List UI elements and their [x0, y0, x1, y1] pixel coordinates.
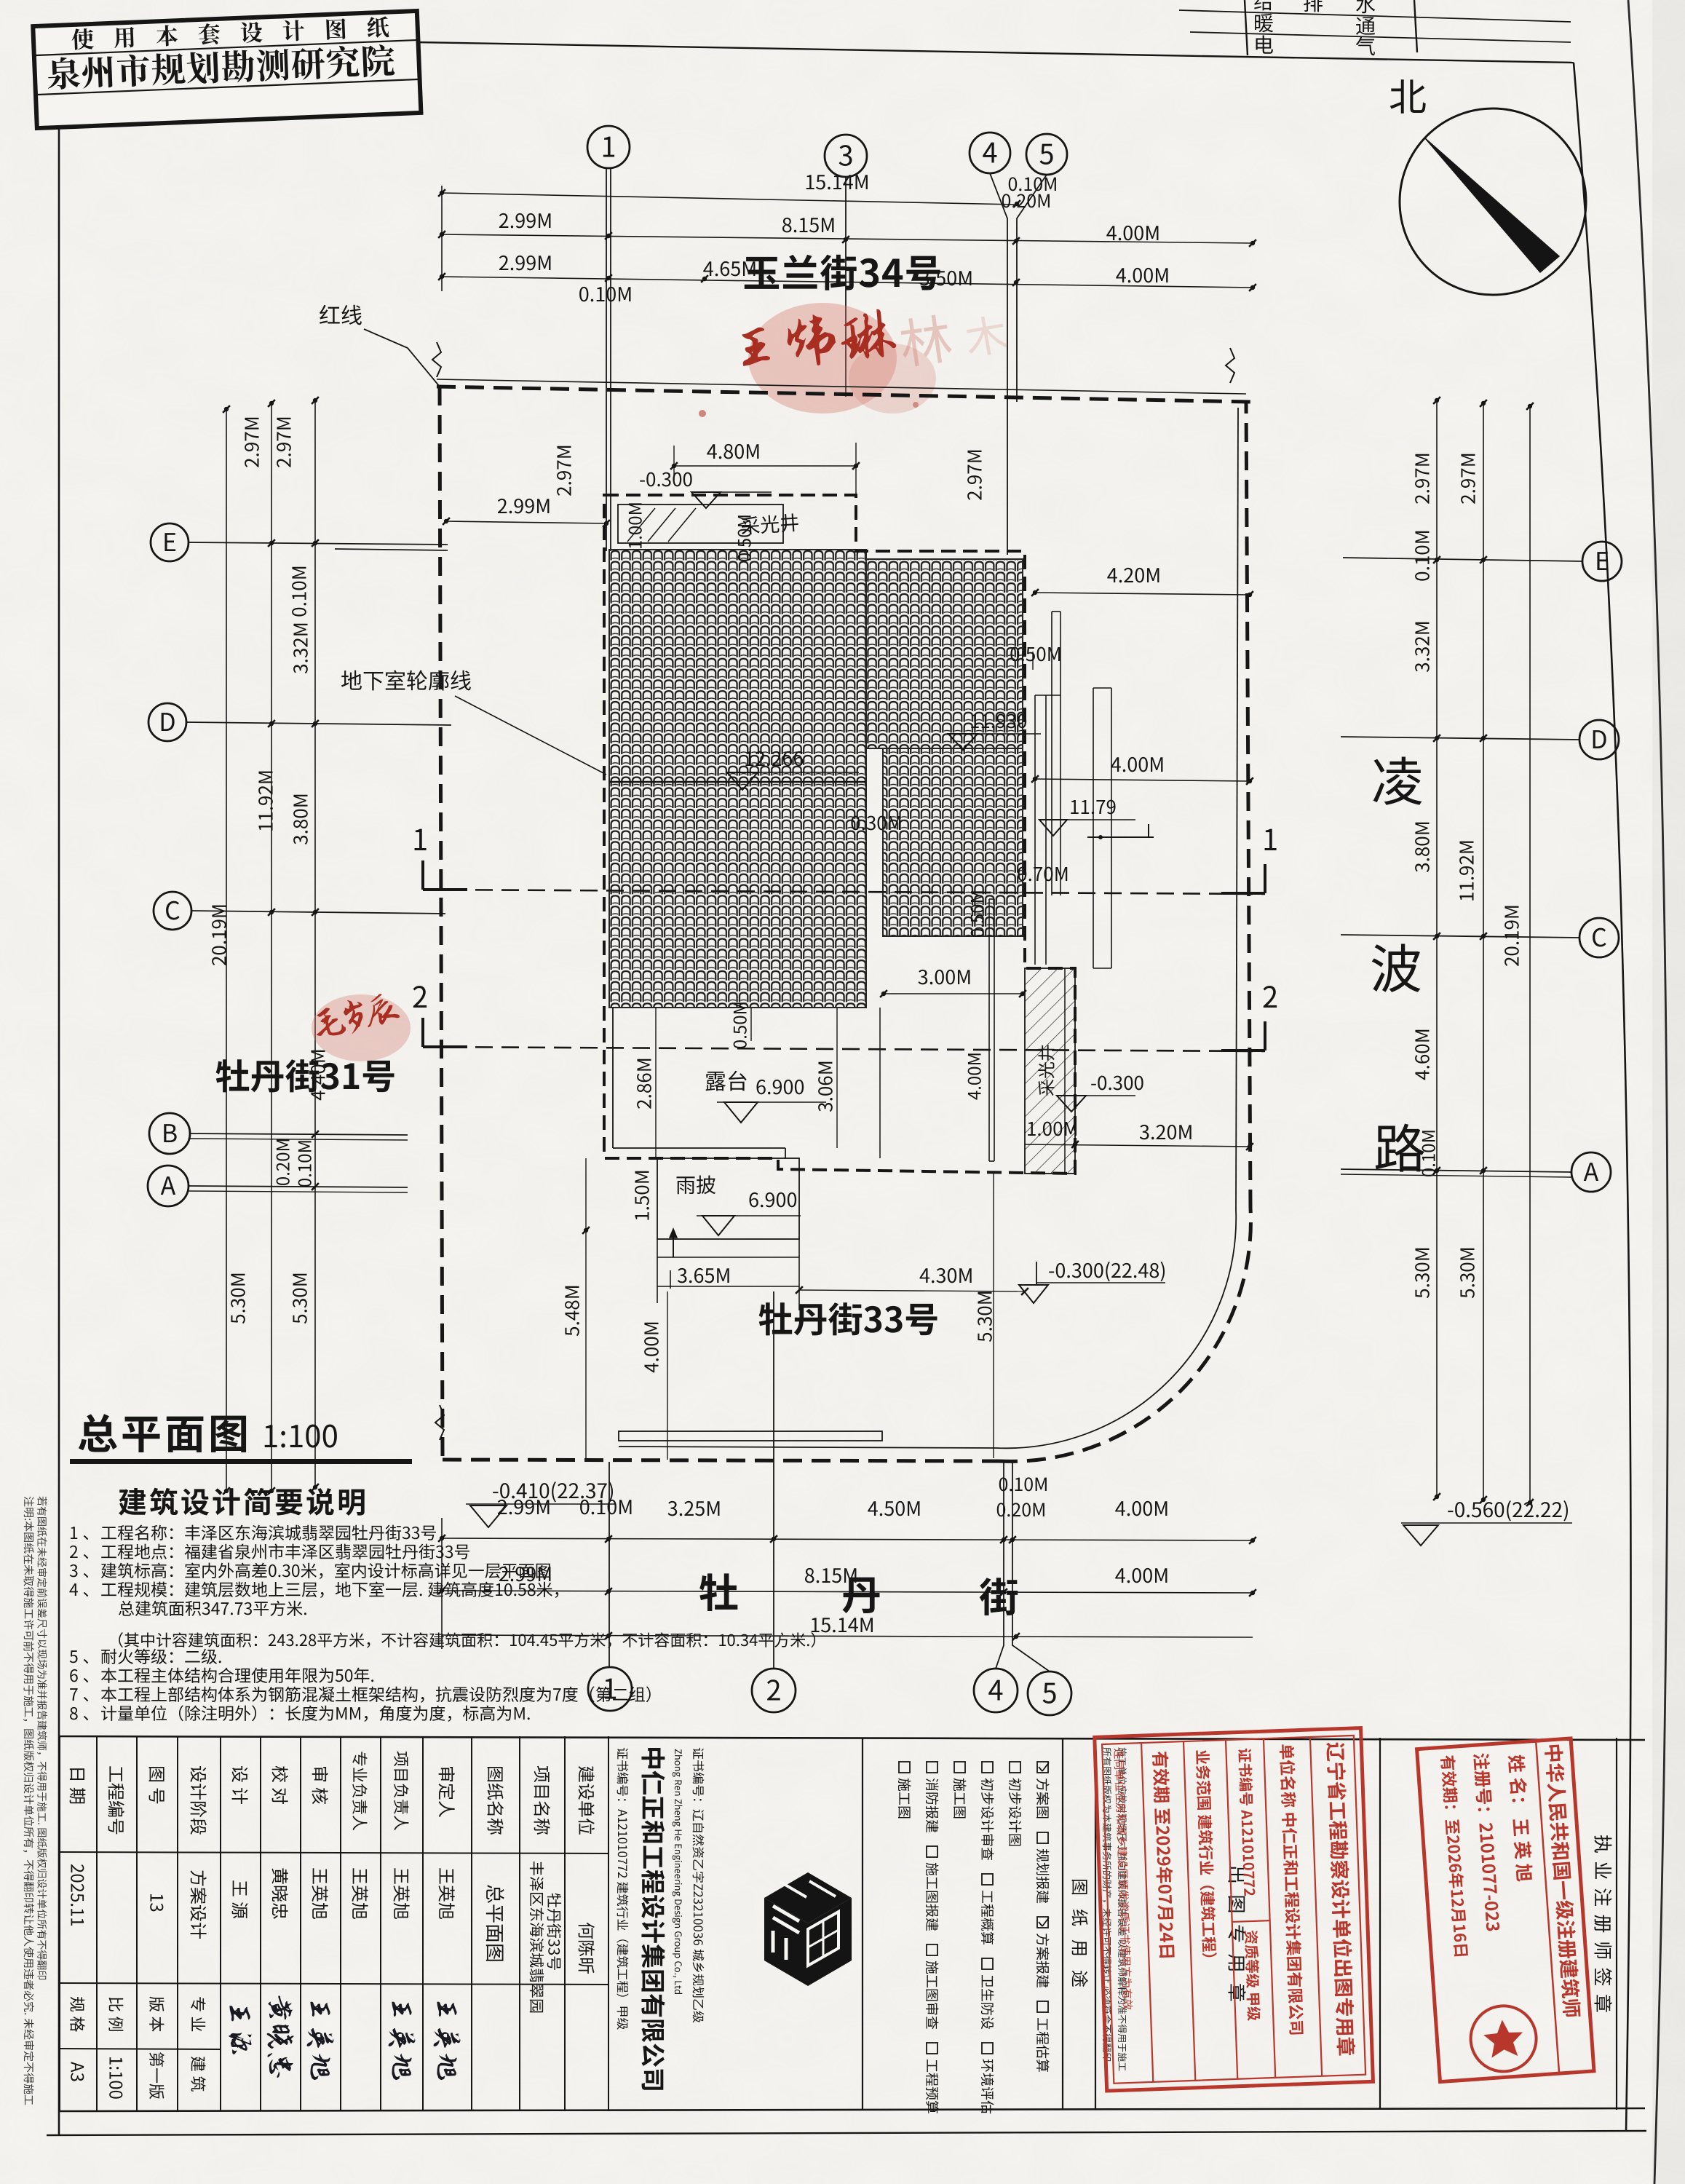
- svg-text:王英旭: 王英旭: [348, 1867, 373, 1920]
- svg-text:-0.560(22.22): -0.560(22.22): [1447, 1495, 1570, 1524]
- svg-text:王源: 王源: [223, 1998, 256, 2059]
- svg-text:C: C: [164, 891, 181, 927]
- svg-text:2.97M: 2.97M: [960, 448, 987, 501]
- svg-text:4 、: 4 、: [69, 1576, 100, 1601]
- svg-text:设计阶段: 设计阶段: [186, 1765, 212, 1835]
- svg-text:4.00M: 4.00M: [1116, 260, 1170, 288]
- svg-text:林: 林: [896, 312, 955, 371]
- svg-text:初步设计图: 初步设计图: [1005, 1778, 1025, 1847]
- svg-text:0.50M: 0.50M: [1010, 640, 1062, 667]
- svg-text:0.10M: 0.10M: [285, 565, 312, 617]
- svg-text:A: A: [161, 1166, 176, 1202]
- svg-text:专业负责人: 专业负责人: [349, 1751, 372, 1831]
- svg-text:0.20M: 0.20M: [996, 1496, 1047, 1522]
- svg-text:5: 5: [1039, 132, 1054, 173]
- svg-text:建 筑: 建 筑: [187, 2056, 210, 2092]
- svg-text:5.30M: 5.30M: [1408, 1246, 1435, 1299]
- svg-text:0.10M: 0.10M: [291, 1139, 317, 1187]
- svg-text:方案图: 方案图: [1033, 1778, 1052, 1819]
- svg-text:-0.300: -0.300: [1090, 1069, 1144, 1096]
- svg-text:凌: 凌: [1371, 740, 1424, 816]
- svg-text:工程估算: 工程估算: [1033, 2017, 1052, 2073]
- svg-text:王英旭: 王英旭: [435, 1867, 460, 1920]
- svg-text:4.00M: 4.00M: [1115, 1560, 1169, 1588]
- svg-text:4.00M: 4.00M: [1111, 749, 1165, 778]
- svg-text:规 格: 规 格: [66, 1996, 90, 2033]
- svg-text:5.30M: 5.30M: [285, 1272, 312, 1324]
- svg-text:0.10M: 0.10M: [999, 1471, 1049, 1497]
- svg-text:气: 气: [1355, 31, 1376, 60]
- svg-text:3.25M: 3.25M: [667, 1493, 721, 1522]
- svg-text:20.19M: 20.19M: [205, 903, 231, 966]
- svg-text:审 核: 审 核: [308, 1765, 333, 1805]
- svg-text:王英旭: 王英旭: [389, 1867, 415, 1920]
- svg-text:执 业 注 册 师 签 章: 执 业 注 册 师 签 章: [1590, 1835, 1617, 2014]
- svg-text:0.50M: 0.50M: [726, 1001, 752, 1049]
- svg-text:施工图报建: 施工图报建: [922, 1862, 942, 1931]
- svg-text:E: E: [162, 523, 177, 558]
- svg-text:路: 路: [1373, 1107, 1426, 1183]
- svg-text:3.20M: 3.20M: [1139, 1117, 1193, 1145]
- svg-text:2.97M: 2.97M: [1408, 452, 1435, 505]
- svg-text:4.20M: 4.20M: [1107, 560, 1161, 588]
- svg-text:2.97M: 2.97M: [1454, 452, 1480, 505]
- svg-text:1.50M: 1.50M: [627, 1169, 654, 1222]
- svg-text:施工图: 施工图: [895, 1778, 914, 1819]
- svg-text:4: 4: [988, 1669, 1003, 1709]
- svg-text:5.30M: 5.30M: [1453, 1246, 1480, 1299]
- svg-text:牡: 牡: [699, 1561, 739, 1619]
- svg-text:2025.11: 2025.11: [66, 1864, 91, 1927]
- svg-text:王英旭: 王英旭: [429, 1995, 461, 2081]
- svg-text:证书编号：A121010772 建筑行业（建筑工程）甲: 证书编号：A121010772 建筑行业（建筑工程）甲级: [614, 1747, 633, 2030]
- svg-text:A3: A3: [66, 2062, 91, 2082]
- svg-text:工程概算: 工程概算: [978, 1890, 997, 1945]
- svg-text:1:100: 1:100: [104, 2056, 130, 2100]
- svg-text:工程编号: 工程编号: [104, 1765, 130, 1835]
- svg-text:若有图纸在未经审定前误差尺寸以现场为准并报告建筑师，不得用于: 若有图纸在未经审定前误差尺寸以现场为准并报告建筑师，不得用于施工. 图纸版权归设…: [34, 1496, 49, 1980]
- svg-text:2.99M: 2.99M: [497, 491, 551, 519]
- svg-text:4.60M: 4.60M: [1408, 1028, 1435, 1080]
- svg-text:规划报建: 规划报建: [1033, 1848, 1052, 1904]
- svg-text:北: 北: [1389, 67, 1427, 122]
- svg-text:专 业: 专 业: [187, 1996, 210, 2033]
- svg-text:初步设计审查: 初步设计审查: [978, 1778, 997, 1861]
- svg-text:20.19M: 20.19M: [1497, 904, 1524, 967]
- svg-text:3.00M: 3.00M: [918, 962, 972, 990]
- svg-text:6.900: 6.900: [756, 1072, 804, 1100]
- svg-text:红线: 红线: [319, 298, 362, 330]
- svg-text:E: E: [1595, 542, 1609, 577]
- svg-text:0.70M: 0.70M: [1017, 860, 1069, 887]
- svg-text:卫生防设: 卫生防设: [978, 1974, 997, 2030]
- svg-text:8.15M: 8.15M: [782, 210, 836, 238]
- svg-text:11.930: 11.930: [970, 707, 1027, 734]
- svg-text:1: 1: [1262, 817, 1278, 859]
- svg-text:总平面图: 总平面图: [482, 1884, 510, 1963]
- svg-text:12.266: 12.266: [744, 743, 804, 772]
- svg-text:C: C: [1591, 918, 1607, 954]
- svg-text:2.86M: 2.86M: [630, 1057, 657, 1109]
- svg-text:黄晓忠: 黄晓忠: [263, 1993, 295, 2080]
- svg-text:比 例: 比 例: [105, 1996, 128, 2033]
- svg-text:波: 波: [1370, 927, 1422, 1003]
- svg-text:王 源: 王 源: [228, 1880, 253, 1919]
- svg-text:王英旭: 王英旭: [384, 1995, 416, 2081]
- svg-text:B: B: [162, 1114, 178, 1150]
- svg-text:5.30M: 5.30M: [223, 1272, 250, 1324]
- svg-text:2: 2: [1262, 974, 1278, 1016]
- svg-text:校 对: 校 对: [268, 1765, 293, 1805]
- svg-text:3.32M: 3.32M: [286, 622, 313, 674]
- svg-text:0.50M: 0.50M: [964, 890, 989, 938]
- svg-text:图 纸 用 途: 图 纸 用 途: [1068, 1878, 1093, 1992]
- svg-text:D: D: [1590, 720, 1607, 756]
- svg-text:4.00M: 4.00M: [1115, 1493, 1169, 1522]
- svg-text:1:100: 1:100: [262, 1412, 338, 1457]
- svg-text:王英旭: 王英旭: [303, 1995, 335, 2081]
- svg-text:黄晓忠: 黄晓忠: [268, 1867, 293, 1920]
- svg-text:0.50M: 0.50M: [731, 514, 756, 562]
- svg-text:-0.300: -0.300: [639, 465, 693, 492]
- svg-text:4.00M: 4.00M: [961, 1052, 986, 1100]
- svg-text:木: 木: [962, 312, 1010, 360]
- svg-text:王英旭: 王英旭: [308, 1867, 333, 1920]
- svg-text:-0.300(22.48): -0.300(22.48): [1048, 1255, 1167, 1283]
- svg-text:2: 2: [412, 974, 428, 1016]
- svg-text:13: 13: [145, 1893, 170, 1912]
- svg-text:6.900: 6.900: [748, 1184, 797, 1213]
- svg-text:0.20M: 0.20M: [1002, 187, 1052, 213]
- svg-text:地下室轮廓线: 地下室轮廓线: [341, 663, 472, 695]
- svg-text:审定人: 审定人: [435, 1765, 460, 1818]
- svg-text:丹: 丹: [841, 1563, 881, 1621]
- svg-text:15.14M: 15.14M: [804, 167, 869, 195]
- svg-text:设 计: 设 计: [228, 1765, 253, 1805]
- svg-text:建筑设计简要说明: 建筑设计简要说明: [118, 1479, 368, 1522]
- svg-text:4.30M: 4.30M: [919, 1260, 973, 1289]
- svg-text:11.92M: 11.92M: [251, 769, 278, 832]
- svg-text:方案设计: 方案设计: [186, 1870, 212, 1939]
- svg-text:采光井: 采光井: [1033, 1044, 1058, 1096]
- svg-text:1: 1: [412, 817, 428, 859]
- svg-text:2: 2: [766, 1669, 781, 1709]
- svg-text:图 号: 图 号: [145, 1765, 170, 1805]
- svg-text:4.50M: 4.50M: [868, 1493, 921, 1522]
- svg-text:3.80M: 3.80M: [286, 793, 313, 845]
- svg-text:资质等级 甲级: 资质等级 甲级: [1241, 1929, 1265, 2021]
- svg-text:图纸名称: 图纸名称: [483, 1765, 509, 1835]
- svg-text:-0.410(22.37): -0.410(22.37): [492, 1476, 615, 1505]
- svg-text:街: 街: [979, 1565, 1019, 1623]
- svg-text:4.00M: 4.00M: [637, 1321, 664, 1373]
- svg-text:A: A: [1584, 1152, 1599, 1188]
- svg-text:2.99M: 2.99M: [499, 205, 552, 234]
- svg-text:计量单位（除注明外）：长度为MM，角度为度，标高为M.: 计量单位（除注明外）：长度为MM，角度为度，标高为M.: [100, 1700, 531, 1725]
- svg-text:3.32M: 3.32M: [1408, 620, 1435, 673]
- svg-text:第一版: 第一版: [146, 2052, 169, 2100]
- svg-text:何陈昕: 何陈昕: [574, 1922, 600, 1974]
- svg-text:施工图: 施工图: [950, 1778, 970, 1819]
- svg-text:环境评估: 环境评估: [978, 2059, 997, 2114]
- svg-text:方案报建: 方案报建: [1033, 1933, 1052, 1988]
- svg-text:1.00M: 1.00M: [622, 502, 647, 550]
- svg-text:日 期: 日 期: [66, 1765, 91, 1805]
- svg-text:总建筑面积347.73平方米.: 总建筑面积347.73平方米.: [118, 1595, 308, 1620]
- svg-text:版 本: 版 本: [146, 1996, 169, 2033]
- svg-text:中仁正和工程设计集团有限公司: 中仁正和工程设计集团有限公司: [636, 1746, 672, 2092]
- svg-text:总平面图: 总平面图: [77, 1402, 252, 1461]
- svg-text:1.00M: 1.00M: [1026, 1115, 1079, 1142]
- svg-text:工程预算: 工程预算: [922, 2059, 942, 2114]
- svg-text:注明:本图纸在未取得施工许可前不得用于施工，图纸版权归设计单: 注明:本图纸在未取得施工许可前不得用于施工，图纸版权归设计单位所有，不得翻印转让…: [21, 1496, 36, 2105]
- svg-text:0.30M: 0.30M: [850, 809, 903, 836]
- svg-text:排: 排: [1303, 0, 1323, 17]
- svg-text:4: 4: [982, 131, 997, 171]
- svg-text:8 、: 8 、: [69, 1700, 100, 1725]
- svg-text:2.99M: 2.99M: [499, 248, 552, 276]
- svg-text:2.97M: 2.97M: [269, 416, 296, 468]
- svg-text:4.00M: 4.00M: [1106, 218, 1160, 246]
- svg-text:2.97M: 2.97M: [550, 444, 576, 496]
- svg-text:3.80M: 3.80M: [1408, 820, 1435, 873]
- svg-text:5.48M: 5.48M: [558, 1284, 584, 1337]
- svg-text:露台: 露台: [705, 1064, 748, 1096]
- svg-text:4.80M: 4.80M: [707, 436, 761, 464]
- svg-text:牡丹街33号: 牡丹街33号: [544, 1893, 566, 1971]
- svg-text:0.10M: 0.10M: [579, 279, 633, 307]
- svg-text:项目名称: 项目名称: [530, 1765, 555, 1835]
- svg-text:5: 5: [1042, 1671, 1057, 1712]
- svg-text:2.97M: 2.97M: [237, 416, 264, 468]
- svg-text:3.65M: 3.65M: [677, 1260, 731, 1289]
- svg-text:玉兰街34号: 玉兰街34号: [742, 243, 943, 298]
- svg-text:证书编号：辽自然资乙字Z23210036 城乡规划乙级: 证书编号：辽自然资乙字Z23210036 城乡规划乙级: [690, 1747, 708, 2023]
- svg-text:建设单位: 建设单位: [574, 1765, 600, 1835]
- svg-text:D: D: [159, 703, 175, 738]
- svg-text:3.06M: 3.06M: [811, 1060, 838, 1112]
- svg-text:0.10M: 0.10M: [1408, 529, 1435, 582]
- svg-text:Zhong Ren Zheng He Engineering: Zhong Ren Zheng He Engineering Design Gr…: [672, 1749, 686, 1995]
- svg-text:牡丹街33号: 牡丹街33号: [758, 1291, 940, 1342]
- svg-text:1: 1: [600, 125, 616, 165]
- svg-text:11.92M: 11.92M: [1452, 839, 1479, 902]
- svg-text:雨披: 雨披: [675, 1170, 716, 1199]
- svg-text:消防报建: 消防报建: [922, 1778, 942, 1833]
- svg-text:施工图审查: 施工图审查: [922, 1961, 942, 2030]
- svg-text:项目负责人: 项目负责人: [390, 1751, 413, 1831]
- svg-text:电: 电: [1253, 30, 1274, 59]
